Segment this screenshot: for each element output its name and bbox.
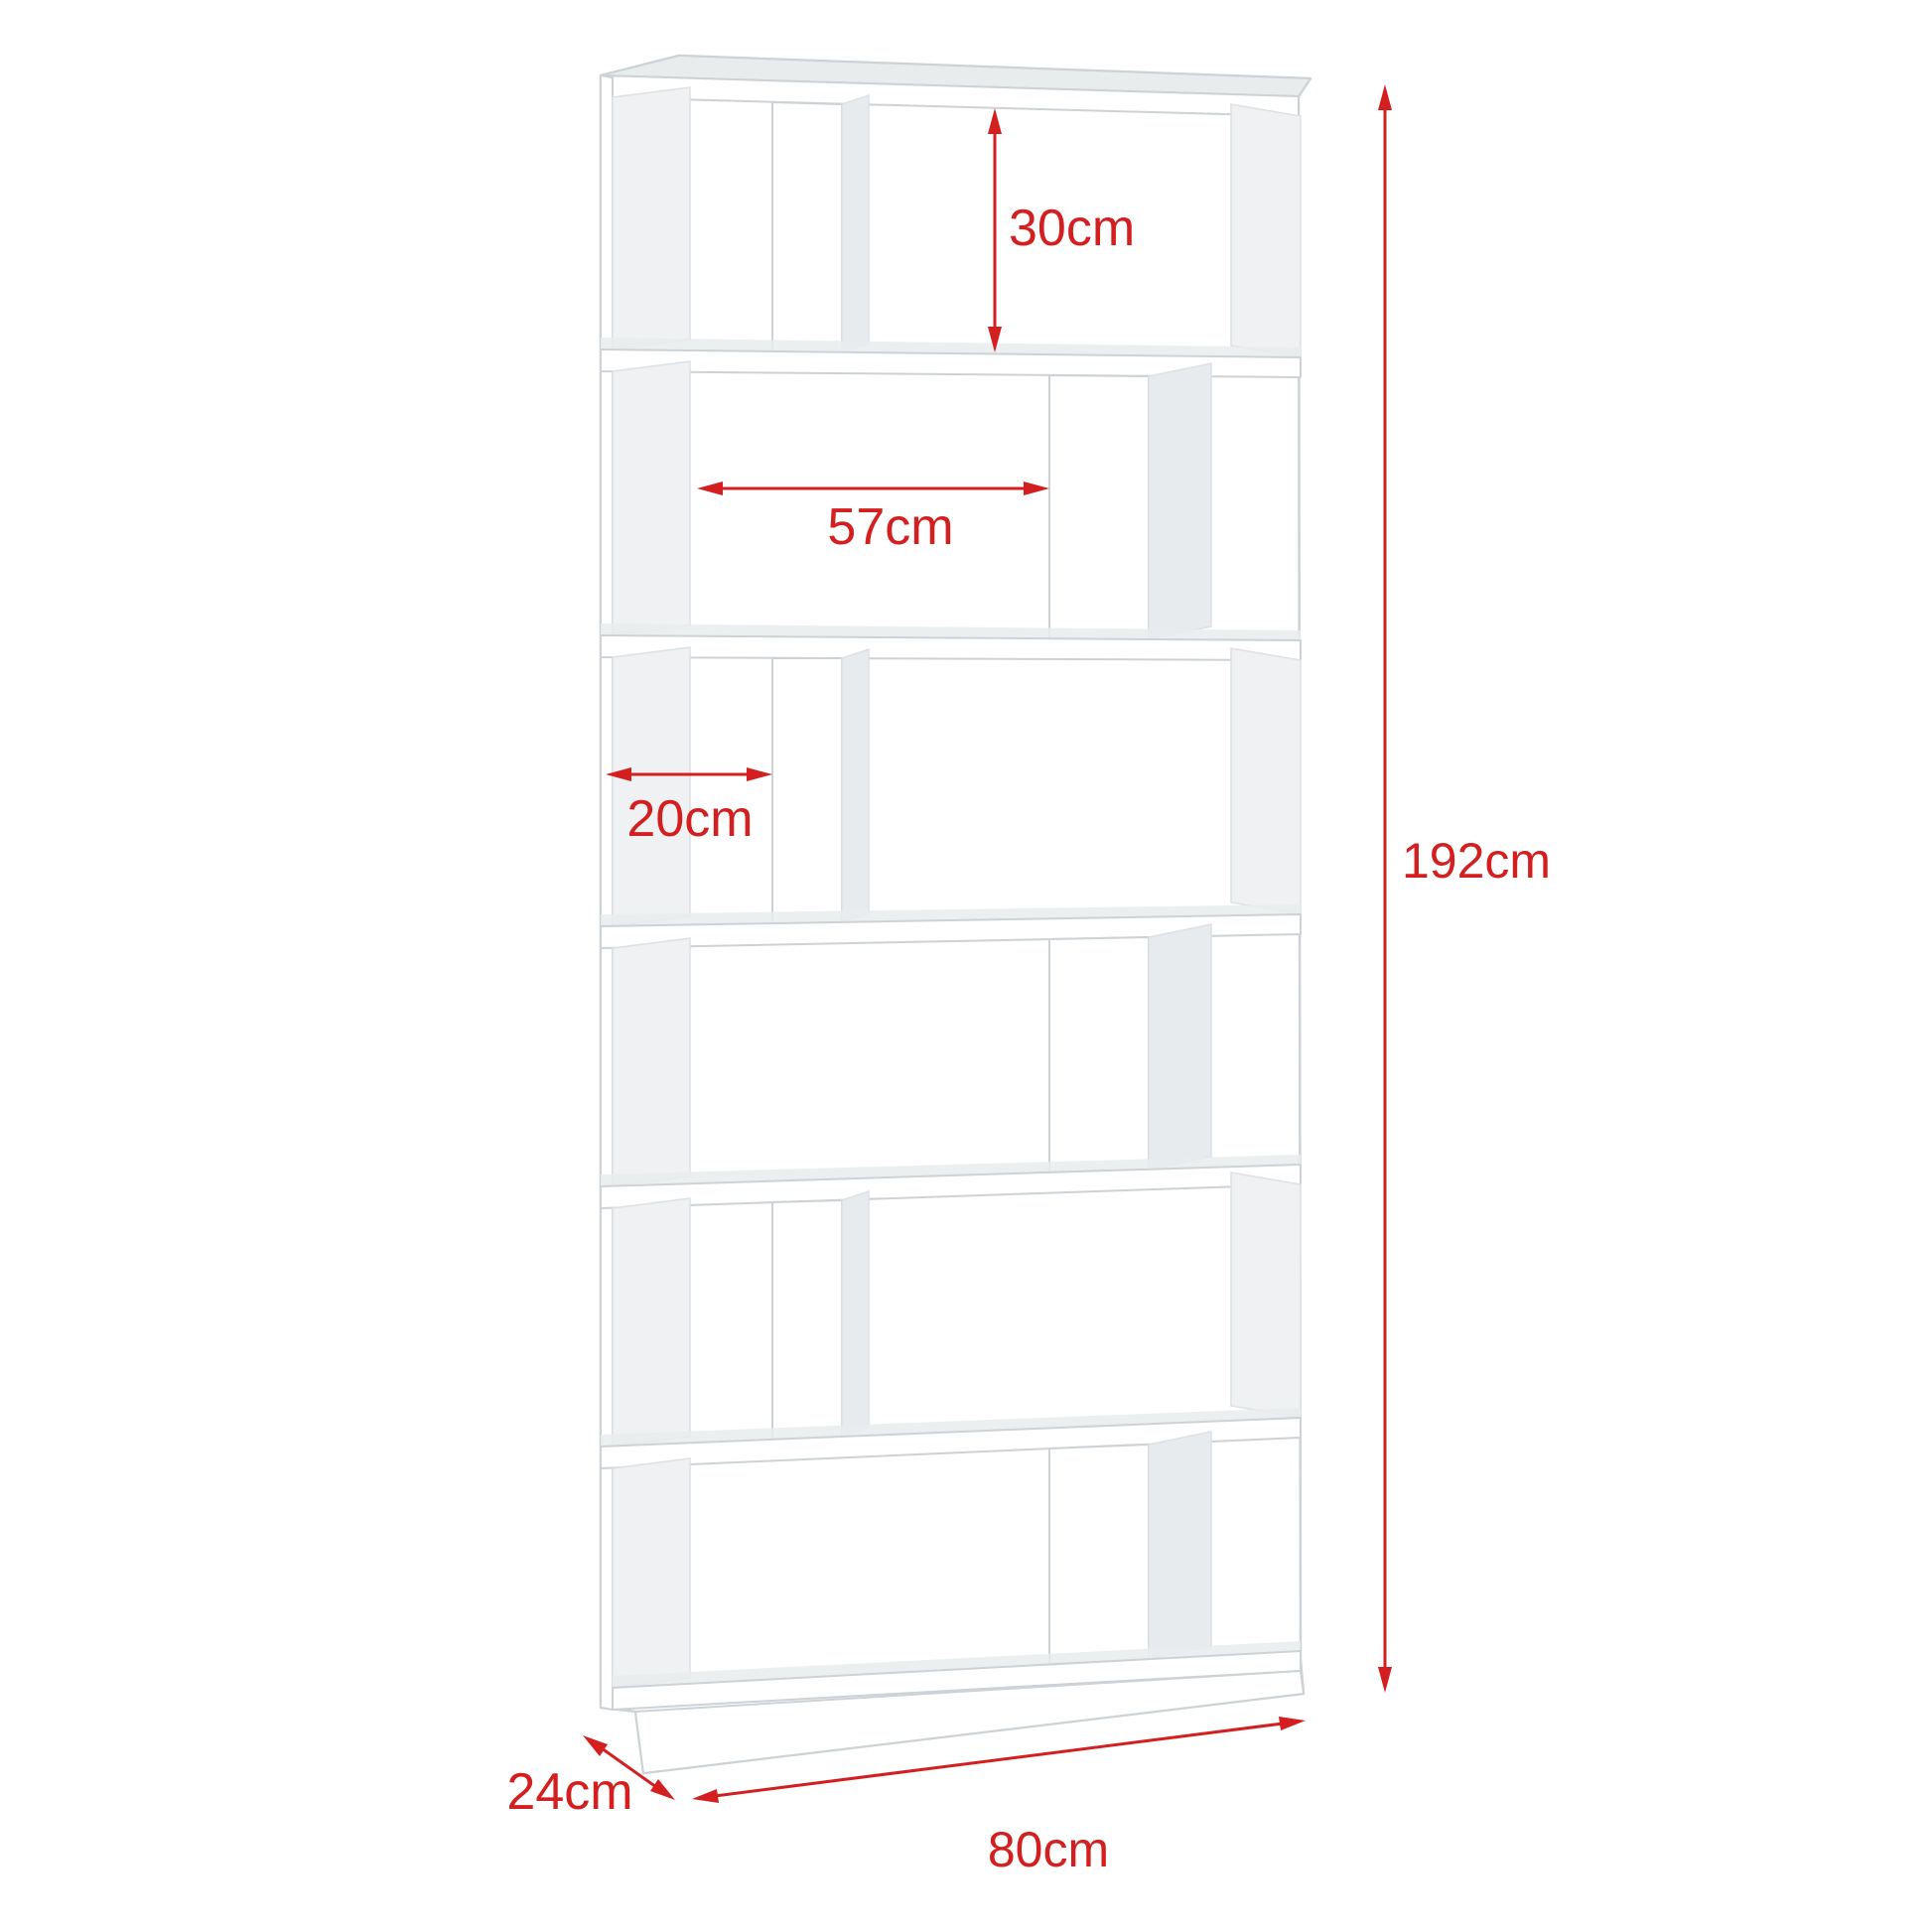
arrow-down-right-icon xyxy=(650,1779,675,1800)
product-dimension-diagram: 30cm 57cm 20cm 192cm 24cm 80cm xyxy=(0,0,1932,1932)
dimension-label-192cm: 192cm xyxy=(1402,833,1551,889)
dimension-total-height: 192cm xyxy=(1378,84,1551,1693)
dimension-label-30cm: 30cm xyxy=(1009,200,1135,257)
dimension-label-20cm: 20cm xyxy=(626,790,753,848)
arrow-up-icon xyxy=(1378,84,1392,110)
arrow-left-icon xyxy=(692,1789,719,1803)
dimension-label-57cm: 57cm xyxy=(827,498,953,556)
arrow-up-left-icon xyxy=(583,1735,608,1756)
dimension-label-80cm: 80cm xyxy=(988,1822,1109,1877)
bookshelf-illustration: 30cm 57cm 20cm 192cm 24cm 80cm xyxy=(0,0,1932,1932)
bookshelf xyxy=(601,56,1311,1773)
dimension-label-24cm: 24cm xyxy=(506,1763,632,1821)
arrow-down-icon xyxy=(1378,1667,1392,1693)
arrow-right-icon xyxy=(1279,1717,1306,1730)
